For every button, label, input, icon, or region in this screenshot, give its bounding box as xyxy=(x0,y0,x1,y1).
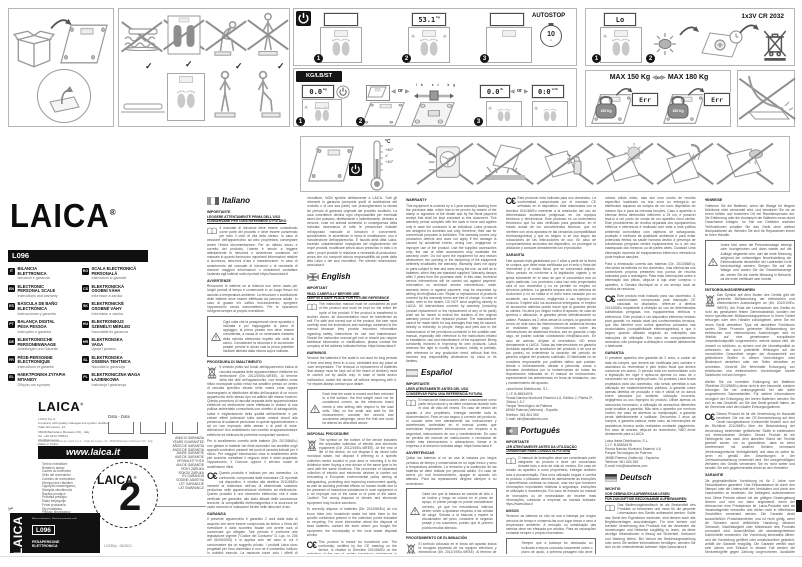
arrow-icon xyxy=(738,21,762,35)
section-subheading: LEER ATENTAMENTE ANTES DEL USOCONSERVAR … xyxy=(406,387,497,395)
warning-box: Jedes Mal, wenn die Personenwaage bewegt… xyxy=(705,240,796,285)
pointer-line xyxy=(156,506,206,507)
flag-es-icon xyxy=(406,369,418,377)
language-section-name: Português xyxy=(521,426,561,436)
ce-mark: C€ xyxy=(705,412,715,423)
autostop-label: AUTOSTOP xyxy=(532,13,565,19)
text-column-1: ItalianoIMPORTANTELEGGERE ATTENTAMENTE P… xyxy=(207,196,298,554)
body-paragraph: Remove the batteries if the scale is not… xyxy=(307,356,398,385)
ce-note: C€Este producto está indicado para uso d… xyxy=(506,196,597,251)
address-block: Laica Iberia Distribución, S.L. C.I.F. B… xyxy=(506,387,597,421)
language-title: ELEKTRONISCHE PERSONENWAAGE xyxy=(18,338,59,347)
body-paragraph: This product is meant for household use.… xyxy=(307,540,398,555)
print-code: LC096/y - 06/2021 xyxy=(104,544,132,548)
language-entry-text: SCALA ELECTRONICĂ PERSONALĂInstrucțiuni … xyxy=(92,267,137,281)
warning-box: Ogni volta che la pesapersone viene spos… xyxy=(207,316,298,357)
power-ring-icon xyxy=(336,85,350,99)
body-paragraph: Das Bedienungshandbuch ist als Bestandte… xyxy=(605,503,696,549)
body-paragraph: Each time the scale is moved and then re… xyxy=(323,392,394,426)
body-paragraph: Jedes Mal, wenn die Personenwaage bewegt… xyxy=(721,243,792,281)
body-paragraph: To correctly dispose of batteries (Dir. … xyxy=(307,507,398,536)
no-heater-icon xyxy=(419,141,471,187)
unit-switch-panel: KG/LB/ST 0.0kg ✳ 1 ◀ or ▶ lb st kg 2 0.0… xyxy=(293,68,577,127)
language-section-header: Português xyxy=(506,426,597,436)
language-entry-text: ΗΛΕΚΤΡΟΝΙΚΗ ΖΥΓΑΡΙΑ ΜΠΑΝΙΟΥΟδηγίες και ε… xyxy=(18,373,66,387)
section-heading: GARANTIE xyxy=(705,473,796,478)
or-label: or xyxy=(398,88,403,94)
section-heading: GARANTÍA xyxy=(506,253,597,258)
warranty-years-line: LAT GWARANCJI xyxy=(152,487,204,491)
text-column-5: urbano sólido misto, mas sim num centro … xyxy=(605,196,696,554)
language-subtitle: Instructions et garantie xyxy=(18,365,54,369)
language-code-badge: HR xyxy=(82,338,89,345)
language-entry: ESBÁSCULA DE BAÑO ELECTRÓNICAInstruccion… xyxy=(8,302,76,316)
address-block: Laica Iberia Distribución, S.L. C.I.F. B… xyxy=(605,439,696,468)
no-washing-icon xyxy=(719,141,771,187)
crossed-bin-icon xyxy=(406,543,416,554)
section-heading: PROCEDURA DI SMALTIMENTO xyxy=(207,360,298,365)
language-title: ELEKTRONIKUS SZEMÉLYI MÉRLEG xyxy=(92,320,131,329)
language-section-name: English xyxy=(322,272,351,282)
language-subtitle: Instrucciones y garantía xyxy=(18,312,58,316)
body-paragraph: Werfen Sie zur korrekten Entsorgung der … xyxy=(705,380,796,409)
section-heading: IMPORTANTE xyxy=(506,440,597,445)
no-soft-surface-icon xyxy=(123,17,161,57)
step-1-badge: 1 xyxy=(314,54,323,63)
language-title: ELECTRONIC PERSONAL SCALE xyxy=(18,285,58,294)
language-code-badge: PL xyxy=(82,374,89,381)
language-subtitle: Használati és garancia xyxy=(92,330,131,334)
carton-box-icon xyxy=(13,25,55,71)
sparkle: ✳ xyxy=(315,147,319,153)
ce-note: C€Dieses Produkt ist für die Verwendung … xyxy=(705,412,796,471)
language-subtitle: Instructions and warranty xyxy=(18,294,58,298)
body-paragraph: Cada vez que la balanza se cambia de sit… xyxy=(422,492,493,530)
language-subtitle: Anleitungen und Garantie xyxy=(18,347,59,351)
section-subheading: LER ATENTAMENTE ANTES DA UTILIZAÇÃOCONSE… xyxy=(506,445,597,453)
body-paragraph: Per lo smaltimento corretto delle batter… xyxy=(207,439,298,468)
manual-book-icon xyxy=(506,457,516,465)
step-3-badge: 3 xyxy=(480,54,489,63)
language-subtitle: Upute i jamstvo xyxy=(92,347,123,351)
language-title: ELEKTRONICKÁ OSOBNÍ VÁHA xyxy=(92,285,125,294)
warning-triangle-icon xyxy=(410,492,420,530)
step-2-badge: 2 xyxy=(646,54,655,63)
warning-triangle-icon xyxy=(509,541,519,554)
body-paragraph: El símbolo colocado en el fondo del apar… xyxy=(406,542,497,554)
manual-book-icon xyxy=(406,399,416,407)
language-entry-text: ELEKTRONICKÉ OSOBNÉ VÁHYInformácie a zár… xyxy=(92,302,124,316)
language-entry: ENELECTRONIC PERSONAL SCALEInstructions … xyxy=(8,285,76,299)
section-heading: IMPORTANTE xyxy=(406,382,497,387)
body-paragraph: Die gegenständliche Vorrichtung ist für … xyxy=(705,479,796,554)
manual-note: El manual de instrucciones debe consider… xyxy=(406,398,497,448)
language-section-name: Deutsch xyxy=(620,473,652,483)
unit-switch-labels: lb st kg xyxy=(416,83,459,87)
language-entry: HUELEKTRONIKUS SZEMÉLYI MÉRLEGHasználati… xyxy=(82,320,150,334)
registration-mark xyxy=(796,500,802,512)
language-subtitle: Οδηγίες και εγγύηση xyxy=(18,383,66,387)
language-entry: ROSCALA ELECTRONICĂ PERSONALĂInstrucțiun… xyxy=(82,267,150,281)
language-entry: FRPÈSE-PERSONNE ÉLECTRONIQUEInstructions… xyxy=(8,356,76,370)
language-subtitle: Instruções e garantia xyxy=(18,330,55,334)
care-conditions-panel: ✳ °C +40° ✓ +10° xyxy=(300,136,790,192)
language-list-right: ROSCALA ELECTRONICĂ PERSONALĂInstrucțiun… xyxy=(82,267,150,387)
language-title: BÁSCULA DE BAÑO ELECTRÓNICA xyxy=(18,302,58,311)
section-heading: IMPORTANT xyxy=(307,286,398,291)
warning-triangle-icon xyxy=(708,243,718,281)
low-battery-blink-icon xyxy=(652,31,678,57)
manual-note: The instruction manual must be considere… xyxy=(307,302,398,348)
language-entry-text: ELEKTRONICKÁ OSOBNÍ VÁHAInformace a záru… xyxy=(92,285,125,299)
slide-switch-icon xyxy=(414,89,454,101)
check-icon: ✓ xyxy=(185,59,193,70)
language-entry: DEELEKTRONISCHE PERSONENWAAGEAnleitungen… xyxy=(8,338,76,352)
body-paragraph: Il manuale di istruzioni deve essere con… xyxy=(207,226,298,276)
step-on-icon xyxy=(253,69,281,121)
step-2-badge: 2 xyxy=(402,54,411,63)
date-label: Data - Date xyxy=(108,414,204,419)
body-paragraph: El manual de instrucciones debe consider… xyxy=(406,398,497,448)
section-heading: WARRANTY xyxy=(406,198,497,203)
language-entry-text: ELEKTRONIKUS SZEMÉLYI MÉRLEGHasználati é… xyxy=(92,320,131,334)
warning-triangle-icon xyxy=(310,392,320,426)
ce-note: C€Questo prodotto è indicato per uso dom… xyxy=(207,471,298,509)
instruction-text-columns: ItalianoIMPORTANTELEGGERE ATTENTAMENTE P… xyxy=(207,196,795,554)
manual-book-icon xyxy=(307,303,317,311)
weee-note: Il simbolo posto sul fondo dell'apparecc… xyxy=(207,365,298,436)
date-fill-box xyxy=(140,422,166,434)
language-entry-text: ELEKTRONICZNA WAGA ŁAZIENKOWAInstrukcja … xyxy=(92,373,141,387)
section-heading: GARANTIA xyxy=(605,351,696,356)
crossed-bin-icon xyxy=(307,439,317,452)
scale-top-icon xyxy=(59,23,109,65)
body-paragraph: Este aparato está garantizado por 2 años… xyxy=(506,259,597,385)
two-year-warranty-logo: LAICA® 2 xyxy=(92,462,158,528)
language-code-badge: CS xyxy=(82,285,89,292)
section-heading: ENTSORGUNGSVERFAHREN xyxy=(705,288,796,293)
step-3-badge: 3 xyxy=(474,117,483,126)
step-1-badge: 1 xyxy=(296,117,305,126)
language-code-badge: RO xyxy=(82,268,89,275)
fold-line xyxy=(0,556,802,557)
warranty-years-list: ANNI DI GARANZIAYEARS GUARANTEEAÑOS DE G… xyxy=(152,437,204,491)
no-kick-panel xyxy=(737,70,795,127)
language-entry-text: BALANÇA DIGITAL PESA PESSOAInstruções e … xyxy=(18,320,55,334)
language-entry: ELΗΛΕΚΤΡΟΝΙΚΗ ΖΥΓΑΡΙΑ ΜΠΑΝΙΟΥΟδηγίες και… xyxy=(8,373,76,387)
language-entry: PTBALANÇA DIGITAL PESA PESSOAInstruções … xyxy=(8,320,76,334)
ce-mark: C€ xyxy=(506,196,516,207)
or-arrows: ▶ xyxy=(661,75,666,81)
pull-tab-icon xyxy=(46,78,82,114)
language-code-badge: PT xyxy=(8,321,15,328)
language-code-badge: DE xyxy=(8,338,15,345)
step-1-badge: 1 xyxy=(592,54,601,63)
warning-triangle-icon xyxy=(211,320,221,354)
language-section-header: Deutsch xyxy=(605,473,696,483)
body-paragraph: Este producto está indicado para uso dom… xyxy=(506,196,597,251)
manual-book-icon xyxy=(605,504,615,512)
section-heading: GARANZIA xyxy=(207,512,298,517)
arrow-icon xyxy=(678,23,702,37)
label-model: L096 xyxy=(32,525,55,535)
language-code-badge: SK xyxy=(82,303,89,310)
weighing-steps-panel: 1 53.1kg ✳✳ 2 AUTOSTOP 10s 3 xyxy=(293,8,577,66)
language-title: ΗΛΕΚΤΡΟΝΙΚΗ ΖΥΓΑΡΙΑ ΜΠΑΝΙΟΥ xyxy=(18,373,66,382)
body-paragraph: rivenditore; NON spedire direttamente a … xyxy=(307,196,398,267)
body-paragraph: Dieses Produkt ist für die Verwendung im… xyxy=(705,412,796,471)
section-heading: PROCEDIMIENTO DE ELIMINACIÓN xyxy=(406,536,497,541)
language-title: ELEKTRONSKA VAGA xyxy=(92,338,123,347)
language-subtitle: Istruzioni e garanzia xyxy=(18,276,50,280)
language-entry-text: BÁSCULA DE BAÑO ELECTRÓNICAInstrucciones… xyxy=(18,302,58,316)
language-section-header: Italiano xyxy=(207,196,298,206)
section-heading: DISPOSAL PROCEDURE xyxy=(307,432,398,437)
language-entry: ITBILANCIA ELETTRONICAIstruzioni e garan… xyxy=(8,267,76,281)
no-sunlight-icon xyxy=(599,141,651,187)
language-entry: PLELEKTRONICZNA WAGA ŁAZIENKOWAInstrukcj… xyxy=(82,373,150,387)
language-title: ELEKTRONSKA OSEBNA TEHTNICA xyxy=(92,356,131,365)
language-title: SCALA ELECTRONICĂ PERSONALĂ xyxy=(92,267,137,276)
body-paragraph: Il simbolo posto sul fondo dell'apparecc… xyxy=(207,365,298,436)
section-subheading: LEGGERE ATTENTAMENTE PRIMA DELL'USOCONSE… xyxy=(207,215,298,223)
section-heading: AVVERTENZE xyxy=(207,279,298,284)
body-paragraph: Il presente apparecchio è garantito 2 an… xyxy=(207,517,298,554)
body-paragraph: Quitar las baterías si no se usa la bala… xyxy=(406,456,497,485)
language-entry: SLELEKTRONSKA OSEBNA TEHTNICANavodila in… xyxy=(82,356,150,370)
retailer-stamp-list: Timbro rivenditoreRetailer's stampCachet… xyxy=(42,463,76,515)
text-column-2: rivenditore; NON spedire direttamente a … xyxy=(307,196,398,554)
language-entry-text: ELECTRONIC PERSONAL SCALEInstructions an… xyxy=(18,285,58,299)
body-paragraph: Questo prodotto è indicato per uso domes… xyxy=(207,471,298,509)
warning-box: Each time the scale is moved and then re… xyxy=(307,389,398,430)
scale-back-icon xyxy=(410,101,456,127)
language-entry-text: ELEKTRONSKA OSEBNA TEHTNICANavodila in g… xyxy=(92,356,131,370)
text-column-3: WARRANTYThis equipment is covered by a 2… xyxy=(406,196,497,554)
manual-book-icon xyxy=(207,227,217,235)
weee-note: The symbol on the bottom of the device i… xyxy=(307,438,398,505)
language-code-badge: FR xyxy=(8,356,15,363)
language-title: PÈSE-PERSONNE ÉLECTRONIQUE xyxy=(18,356,54,365)
section-heading: HINWEISE xyxy=(705,198,796,203)
manual-note: Il manuale di istruzioni deve essere con… xyxy=(207,226,298,276)
flag-de-icon xyxy=(605,474,617,482)
manual-note: O manual de instruções deve ser consider… xyxy=(506,456,597,506)
or-arrows: ◀ xyxy=(510,88,515,95)
section-heading: WARNINGS xyxy=(307,351,398,356)
max-180-label: MAX 180 Kg xyxy=(668,74,708,81)
language-subtitle: Navodila in garancija xyxy=(92,365,131,369)
weight-155-icon: 155 Kg xyxy=(594,95,618,121)
laica-logo: LAICA® xyxy=(10,197,117,236)
no-edge-standing-icon xyxy=(249,11,287,59)
language-section-header: English xyxy=(307,272,398,282)
body-paragraph: O manual de instruções deve ser consider… xyxy=(506,456,597,506)
crossed-bin-icon xyxy=(705,294,715,307)
ce-mark: C€ xyxy=(207,471,217,482)
body-paragraph: Das Symbol auf dem Boden des Geräts gibt… xyxy=(705,293,796,377)
body-paragraph: The symbol on the bottom of the device i… xyxy=(307,438,398,505)
max-capacity-panel: MAX 150 Kg ◀or▶ MAX 180 Kg 155 Kg Err 18… xyxy=(585,70,731,127)
leaflet-sheet: { "brand": "LAICA", "model": "L096", "to… xyxy=(0,0,802,567)
warning-box: Cada vez que la balanza se cambia de sit… xyxy=(406,488,497,533)
language-section-header: Español xyxy=(406,368,497,378)
language-subtitle: Informácie a záruka xyxy=(92,312,124,316)
battery-panel: 1x3V CR 2032 Lo ✳ 1 2 xyxy=(585,8,795,66)
weee-note: El símbolo colocado en el fondo del apar… xyxy=(406,542,497,554)
body-paragraph: Rimuovere le batterie se la bilancia non… xyxy=(207,284,298,313)
section-subheading: VOR GEBRAUCH AUFMERKSAM LESENFÜR ZUKÜNFT… xyxy=(605,492,696,500)
body-paragraph: Para a eliminação correta das baterias (… xyxy=(605,262,696,291)
no-water-icon xyxy=(659,141,711,187)
temperature-labels: °C +40° ✓ +10° xyxy=(385,139,393,165)
warning-box: Sempre que a balança for deslocada ou in… xyxy=(506,538,597,554)
language-title: ELEKTRONICKÉ OSOBNÉ VÁHY xyxy=(92,302,124,311)
language-code-badge: SL xyxy=(82,356,89,363)
scale-flip-icon xyxy=(360,101,406,127)
section-heading: IMPORTANTE xyxy=(207,210,298,215)
language-entry-text: ELEKTRONSKA VAGAUpute i jamstvo xyxy=(92,338,123,352)
bare-feet-scale-icon xyxy=(167,73,205,121)
body-paragraph: Remover as baterias se não se usa a bala… xyxy=(506,514,597,535)
language-code-badge: EN xyxy=(8,285,15,292)
language-entry: SKELEKTRONICKÉ OSOBNÉ VÁHYInformácie a z… xyxy=(82,302,150,316)
no-shoes-icon xyxy=(165,13,203,57)
or-arrows: ◀ xyxy=(391,88,396,95)
body-paragraph: Sempre que a balança for deslocada ou in… xyxy=(522,541,593,554)
model-bar: L096 xyxy=(8,250,148,262)
power-button-icon xyxy=(296,11,311,26)
stand-straight-icon xyxy=(213,69,237,121)
crossed-bin-icon xyxy=(762,29,788,61)
body-paragraph: urbano sólido misto, mas sim num centro … xyxy=(605,196,696,259)
language-code-badge: IT xyxy=(8,268,15,275)
language-list-left: ITBILANCIA ELETTRONICAIstruzioni e garan… xyxy=(8,267,76,387)
language-section-name: Italiano xyxy=(222,196,250,206)
no-spray-icon xyxy=(539,141,591,187)
flag-it-icon xyxy=(207,197,219,205)
autostop-timer-icon: 10s xyxy=(540,25,562,47)
max-150-label: MAX 150 Kg xyxy=(610,74,650,81)
language-entry: CSELEKTRONICKÁ OSOBNÍ VÁHAInformace a zá… xyxy=(82,285,150,299)
thermometer-icon xyxy=(367,139,387,191)
weee-note: Das Symbol auf dem Boden des Geräts gibt… xyxy=(705,293,796,377)
language-entry-text: PÈSE-PERSONNE ÉLECTRONIQUEInstructions e… xyxy=(18,356,54,370)
hard-floor-icon xyxy=(121,101,165,115)
ce-note: C€This product is meant for household us… xyxy=(307,540,398,555)
date-fill-box xyxy=(172,422,198,434)
power-button-icon xyxy=(349,163,362,176)
body-paragraph: This equipment is covered by a 2-year wa… xyxy=(406,204,497,364)
language-title: BALANÇA DIGITAL PESA PESSOA xyxy=(18,320,55,329)
unit-button-label: KG/LB/ST xyxy=(296,71,342,82)
language-entry: HRELEKTRONSKA VAGAUpute i jamstvo xyxy=(82,338,150,352)
crossed-bin-icon xyxy=(207,366,217,379)
ce-note: C€Este produto está indicado para uso do… xyxy=(605,294,696,349)
date-signature-area: Data - Date xyxy=(108,414,204,435)
text-column-4: C€Este producto está indicado para uso d… xyxy=(506,196,597,554)
language-subtitle: Informace a záruka xyxy=(92,294,125,298)
language-title: ELEKTRONICZNA WAGA ŁAZIENKOWA xyxy=(92,373,141,382)
language-subtitle: Instrucțiuni și garanție xyxy=(92,276,137,280)
language-subtitle: Instrukcja i gwarancja xyxy=(92,383,141,387)
flag-gb-icon xyxy=(307,273,319,281)
text-column-6: HINWEISEEntfernen Sie die Batterien, wen… xyxy=(705,196,796,554)
manual-note: Das Bedienungshandbuch ist als Bestandte… xyxy=(605,503,696,549)
or-arrows: ▶ xyxy=(524,88,529,95)
label-type: PESAPERSONE ELETTRONICA xyxy=(32,540,59,549)
check-icon: ✓ xyxy=(145,61,153,72)
flag-pt-icon xyxy=(506,427,518,435)
language-entry-text: ELEKTRONISCHE PERSONENWAAGEAnleitungen u… xyxy=(18,338,59,352)
no-bending-icon xyxy=(207,13,245,59)
battery-tab-detail-circle xyxy=(37,69,91,123)
body-paragraph: O presente aparelho tem garantia de 2 an… xyxy=(605,356,696,436)
or-label: or xyxy=(517,88,522,94)
ce-mark: C€ xyxy=(307,540,317,551)
language-code-badge: HU xyxy=(82,321,89,328)
body-paragraph: Este produto está indicado para uso domé… xyxy=(605,294,696,349)
language-title: BILANCIA ELETTRONICA xyxy=(18,267,50,276)
no-kick-icon xyxy=(741,74,793,124)
language-section-name: Español xyxy=(421,368,452,378)
language-code-badge: ES xyxy=(8,303,15,310)
weight-185-icon: 185 Kg xyxy=(666,95,690,121)
usage-dos-donts-panel: ✓ ✓ ✓ ✓ xyxy=(118,8,290,127)
website-bar: www.laica.it xyxy=(38,446,148,459)
laica-logo-small: LAICA® xyxy=(38,398,148,416)
language-code-badge: EL xyxy=(8,374,15,381)
body-paragraph: Ogni volta che la pesapersone viene spos… xyxy=(223,320,294,354)
section-heading: ADVERTENCIAS xyxy=(406,451,497,456)
language-entry-text: BILANCIA ELETTRONICAIstruzioni e garanzi… xyxy=(18,267,50,281)
body-paragraph: The instruction manual must be considere… xyxy=(307,302,398,348)
section-heading: WICHTIG xyxy=(605,487,696,492)
body-paragraph: Entfernen Sie die Batterien, wenn die Wa… xyxy=(705,204,796,238)
section-subheading: READ CAREFULLY BEFORE USEKEEP IN A SAFE … xyxy=(307,292,398,300)
section-heading: AVISOS xyxy=(506,509,597,514)
ce-mark: C€ xyxy=(605,294,615,305)
unboxing-panel xyxy=(8,8,114,127)
date-fill-box xyxy=(108,422,134,434)
battery-type-label: 1x3V CR 2032 xyxy=(741,13,784,20)
no-impact-icon xyxy=(479,141,531,187)
step-2-badge: 2 xyxy=(356,117,365,126)
or-arrows: ▶ xyxy=(405,88,410,95)
product-label: LAICA Bilancia elettronica · Electronic … xyxy=(10,513,100,553)
